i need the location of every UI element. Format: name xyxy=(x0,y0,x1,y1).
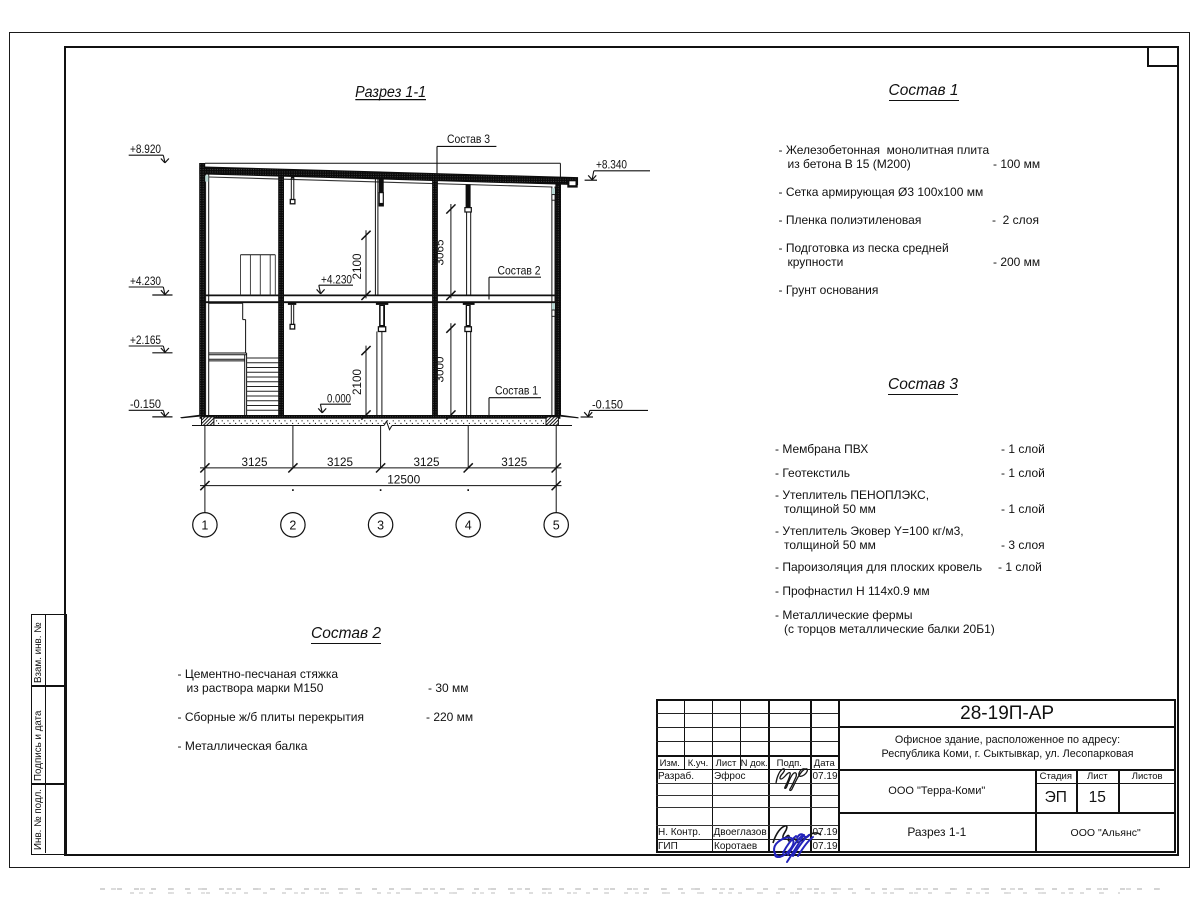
svg-text:+8.340: +8.340 xyxy=(596,158,627,172)
svg-text:Состав 1: Состав 1 xyxy=(495,384,538,398)
svg-text:Состав 2: Состав 2 xyxy=(498,263,541,277)
svg-text:3125: 3125 xyxy=(414,455,440,469)
svg-text:4: 4 xyxy=(465,518,472,532)
svg-text:Состав 3: Состав 3 xyxy=(447,132,490,146)
svg-text:3125: 3125 xyxy=(242,455,268,469)
svg-text:2100: 2100 xyxy=(350,253,364,279)
svg-text:+4.230: +4.230 xyxy=(321,272,352,286)
svg-text:+4.230: +4.230 xyxy=(130,274,161,288)
svg-text:3125: 3125 xyxy=(327,455,353,469)
svg-text:3125: 3125 xyxy=(501,455,527,469)
svg-text:+2.165: +2.165 xyxy=(130,333,161,347)
svg-text:3000: 3000 xyxy=(432,356,446,382)
svg-text:0.000: 0.000 xyxy=(327,391,351,405)
svg-text:2: 2 xyxy=(289,518,296,532)
svg-text:-0.150: -0.150 xyxy=(130,397,161,411)
svg-text:3: 3 xyxy=(377,518,384,532)
svg-text:5: 5 xyxy=(553,518,560,532)
svg-text:2100: 2100 xyxy=(350,369,364,395)
svg-text:1: 1 xyxy=(201,518,208,532)
svg-text:12500: 12500 xyxy=(387,472,420,486)
svg-text:Разрез 1-1: Разрез 1-1 xyxy=(355,84,426,101)
svg-text:+8.920: +8.920 xyxy=(130,142,161,156)
svg-text:3065: 3065 xyxy=(432,239,446,265)
svg-text:-0.150: -0.150 xyxy=(592,397,623,411)
